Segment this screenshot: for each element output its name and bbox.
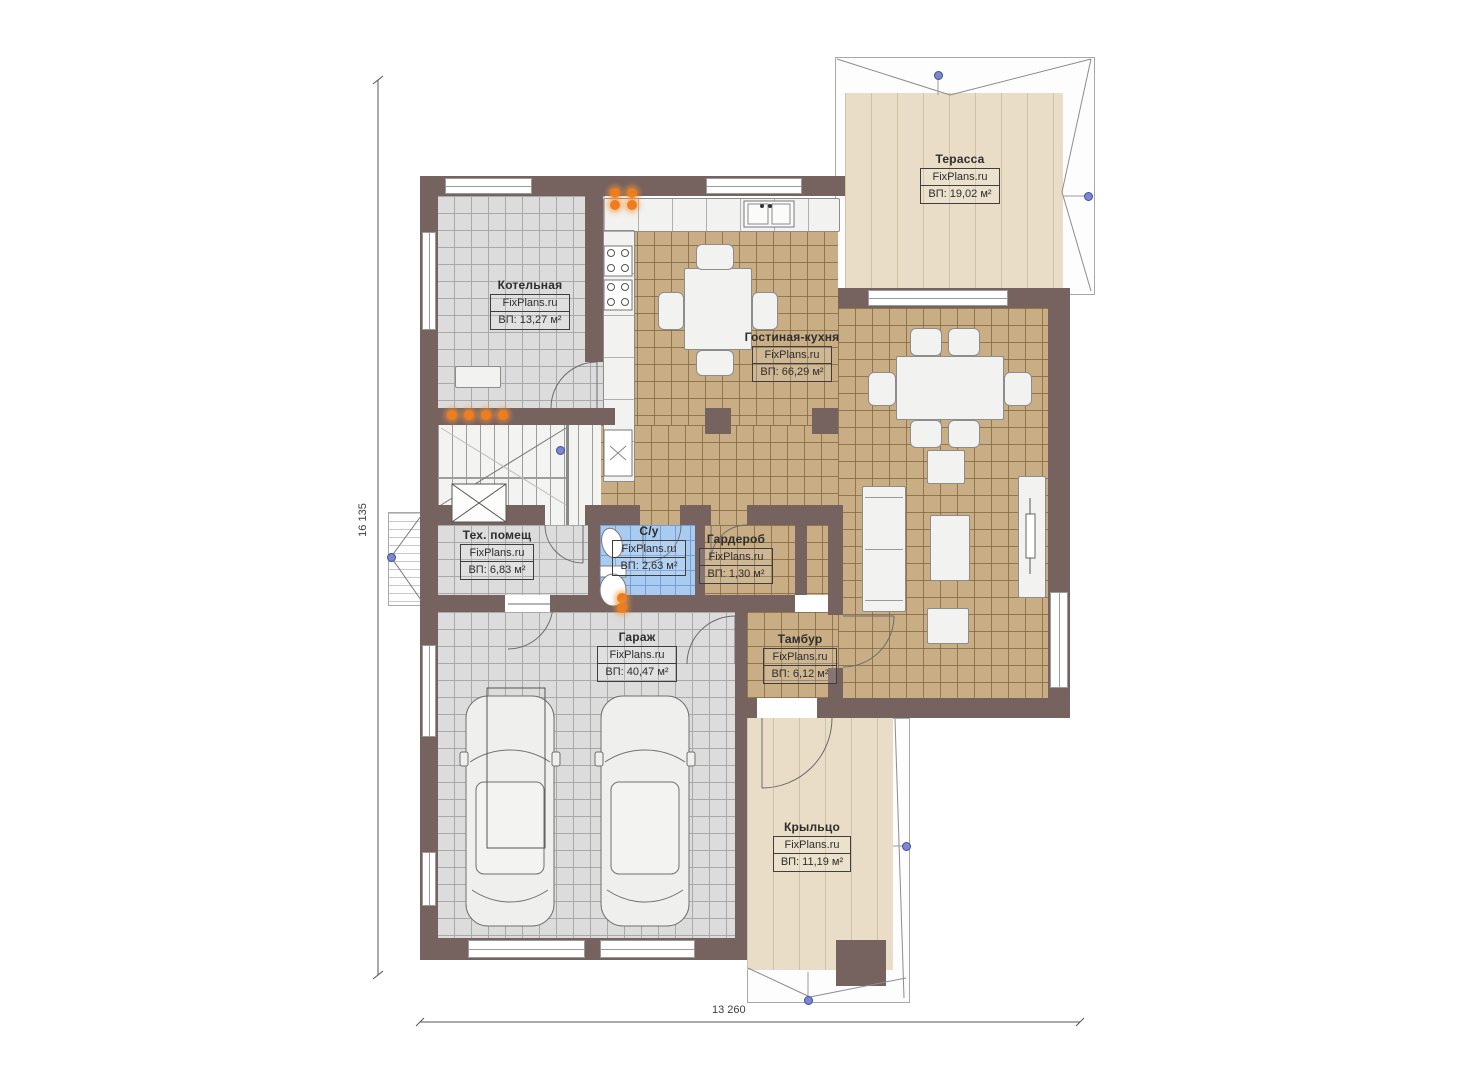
window bbox=[706, 178, 802, 194]
dimension-marker bbox=[1084, 192, 1093, 201]
label-box: FixPlans.ru ВП: 40,47 м² bbox=[597, 646, 676, 682]
radiator bbox=[617, 603, 627, 613]
room-name: Котельная bbox=[475, 278, 585, 292]
room-label-bathroom: С/у FixPlans.ru ВП: 2,63 м² bbox=[608, 524, 690, 576]
watermark: FixPlans.ru bbox=[753, 347, 830, 364]
dimension-marker bbox=[556, 446, 565, 455]
kitchen-counter-left bbox=[603, 230, 635, 482]
room-label-boiler: Котельная FixPlans.ru ВП: 13,27 м² bbox=[475, 278, 585, 330]
boiler-unit bbox=[455, 366, 501, 388]
radiator bbox=[617, 593, 627, 603]
dimension-left: 16 135 bbox=[357, 503, 369, 537]
dining-table bbox=[896, 356, 1004, 420]
watermark: FixPlans.ru bbox=[491, 295, 568, 312]
room-label-terrace: Терасса FixPlans.ru ВП: 19,02 м² bbox=[905, 152, 1015, 204]
window bbox=[422, 645, 436, 737]
watermark: FixPlans.ru bbox=[700, 549, 771, 566]
dimension-marker bbox=[902, 842, 911, 851]
wall-wardrobe-right bbox=[795, 525, 807, 595]
garage-door bbox=[468, 940, 585, 958]
wall-tech-bath bbox=[588, 525, 600, 595]
radiator bbox=[610, 188, 620, 198]
watermark: FixPlans.ru bbox=[461, 545, 532, 562]
dining-chair bbox=[910, 328, 942, 356]
room-area: ВП: 66,29 м² bbox=[753, 364, 830, 380]
wall-boiler-kitchen bbox=[585, 196, 603, 362]
stairs-rail bbox=[566, 425, 569, 525]
dimension-marker bbox=[804, 996, 813, 1005]
kitchen-chair bbox=[696, 244, 734, 270]
room-name: Гардероб bbox=[688, 532, 784, 546]
dimension-marker bbox=[934, 71, 943, 80]
room-name: Гараж bbox=[583, 630, 691, 644]
watermark: FixPlans.ru bbox=[774, 837, 850, 854]
label-box: FixPlans.ru ВП: 13,27 м² bbox=[490, 294, 569, 330]
wall-living-left-1 bbox=[828, 505, 843, 615]
radiator bbox=[464, 410, 474, 420]
watermark: FixPlans.ru bbox=[598, 647, 675, 664]
kitchen-counter-top bbox=[603, 198, 840, 232]
window bbox=[1050, 592, 1068, 688]
label-box: FixPlans.ru ВП: 6,83 м² bbox=[460, 544, 533, 580]
radiator bbox=[481, 410, 491, 420]
room-area: ВП: 2,63 м² bbox=[613, 558, 684, 574]
watermark: FixPlans.ru bbox=[764, 649, 835, 666]
window bbox=[422, 232, 436, 330]
room-area: ВП: 6,12 м² bbox=[764, 666, 835, 682]
sofa-seam bbox=[865, 549, 903, 550]
room-name: Крыльцо bbox=[762, 820, 862, 834]
tv-cabinet bbox=[1018, 476, 1046, 598]
label-box: FixPlans.ru ВП: 66,29 м² bbox=[752, 346, 831, 382]
room-name: Тех. помещ bbox=[443, 528, 551, 542]
armchair bbox=[927, 450, 965, 484]
room-name: Терасса bbox=[905, 152, 1015, 166]
wall-mid-2 bbox=[585, 505, 640, 525]
radiator bbox=[610, 200, 620, 210]
wall-garage-top-1 bbox=[437, 595, 505, 612]
dining-chair bbox=[1004, 372, 1032, 406]
room-area: ВП: 6,83 м² bbox=[461, 562, 532, 578]
room-label-vestibule: Тамбур FixPlans.ru ВП: 6,12 м² bbox=[752, 632, 848, 684]
wall-mid-1 bbox=[437, 505, 545, 525]
watermark: FixPlans.ru bbox=[921, 169, 998, 186]
radiator bbox=[447, 410, 457, 420]
kitchen-chair bbox=[658, 292, 684, 330]
room-name: Гостиная-кухня bbox=[728, 330, 856, 344]
window bbox=[422, 852, 436, 906]
room-area: ВП: 19,02 м² bbox=[921, 186, 998, 202]
wall-garage-top-2 bbox=[550, 595, 795, 612]
label-box: FixPlans.ru ВП: 6,12 м² bbox=[763, 648, 836, 684]
window-terrace-door bbox=[868, 290, 1008, 306]
room-label-wardrobe: Гардероб FixPlans.ru ВП: 1,30 м² bbox=[688, 532, 784, 584]
armchair bbox=[927, 608, 969, 644]
dining-chair bbox=[868, 372, 896, 406]
wall-mid-3 bbox=[680, 505, 711, 525]
stairs-landing-line bbox=[437, 477, 567, 479]
room-name: Тамбур bbox=[752, 632, 848, 646]
room-label-porch: Крыльцо FixPlans.ru ВП: 11,19 м² bbox=[762, 820, 862, 872]
watermark: FixPlans.ru bbox=[613, 541, 684, 558]
radiator bbox=[627, 200, 637, 210]
room-label-tech: Тех. помещ FixPlans.ru ВП: 6,83 м² bbox=[443, 528, 551, 580]
column bbox=[812, 408, 838, 434]
room-area: ВП: 11,19 м² bbox=[774, 854, 850, 870]
wall-vestibule-bottom-1 bbox=[735, 698, 757, 718]
label-box: FixPlans.ru ВП: 11,19 м² bbox=[773, 836, 851, 872]
window bbox=[445, 178, 532, 194]
wall-garage-porch bbox=[735, 718, 747, 940]
garage-door bbox=[600, 940, 695, 958]
room-area: ВП: 1,30 м² bbox=[700, 566, 771, 582]
label-box: FixPlans.ru ВП: 1,30 м² bbox=[699, 548, 772, 584]
room-label-garage: Гараж FixPlans.ru ВП: 40,47 м² bbox=[583, 630, 691, 682]
porch-column bbox=[836, 940, 886, 986]
dimension-marker bbox=[387, 553, 396, 562]
dimension-bottom: 13 260 bbox=[712, 1004, 746, 1016]
wall-vestibule-bottom-2 bbox=[817, 698, 893, 718]
column bbox=[705, 408, 731, 434]
label-box: FixPlans.ru ВП: 19,02 м² bbox=[920, 168, 999, 204]
room-area: ВП: 13,27 м² bbox=[491, 312, 568, 328]
kitchen-chair bbox=[752, 292, 778, 330]
coffee-table bbox=[930, 515, 970, 581]
radiator bbox=[627, 188, 637, 198]
wall-mid-4 bbox=[747, 505, 838, 525]
label-box: FixPlans.ru ВП: 2,63 м² bbox=[612, 540, 685, 576]
room-area: ВП: 40,47 м² bbox=[598, 664, 675, 680]
dining-chair bbox=[948, 328, 980, 356]
room-name: С/у bbox=[608, 524, 690, 538]
radiator bbox=[498, 410, 508, 420]
floor-plan: Терасса FixPlans.ru ВП: 19,02 м² Котельн… bbox=[0, 0, 1474, 1080]
sofa bbox=[862, 486, 906, 612]
dining-chair bbox=[948, 420, 980, 448]
dining-chair bbox=[910, 420, 942, 448]
room-label-living-kitchen: Гостиная-кухня FixPlans.ru ВП: 66,29 м² bbox=[728, 330, 856, 382]
wall-garage-vestibule bbox=[735, 612, 747, 698]
